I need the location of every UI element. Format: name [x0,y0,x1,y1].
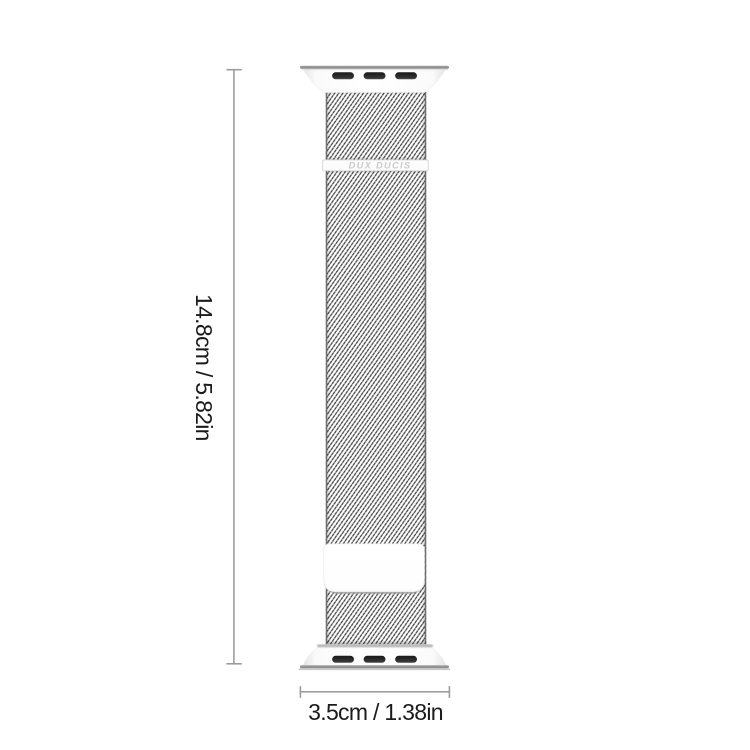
svg-text:DUX DUCIS: DUX DUCIS [349,161,412,171]
